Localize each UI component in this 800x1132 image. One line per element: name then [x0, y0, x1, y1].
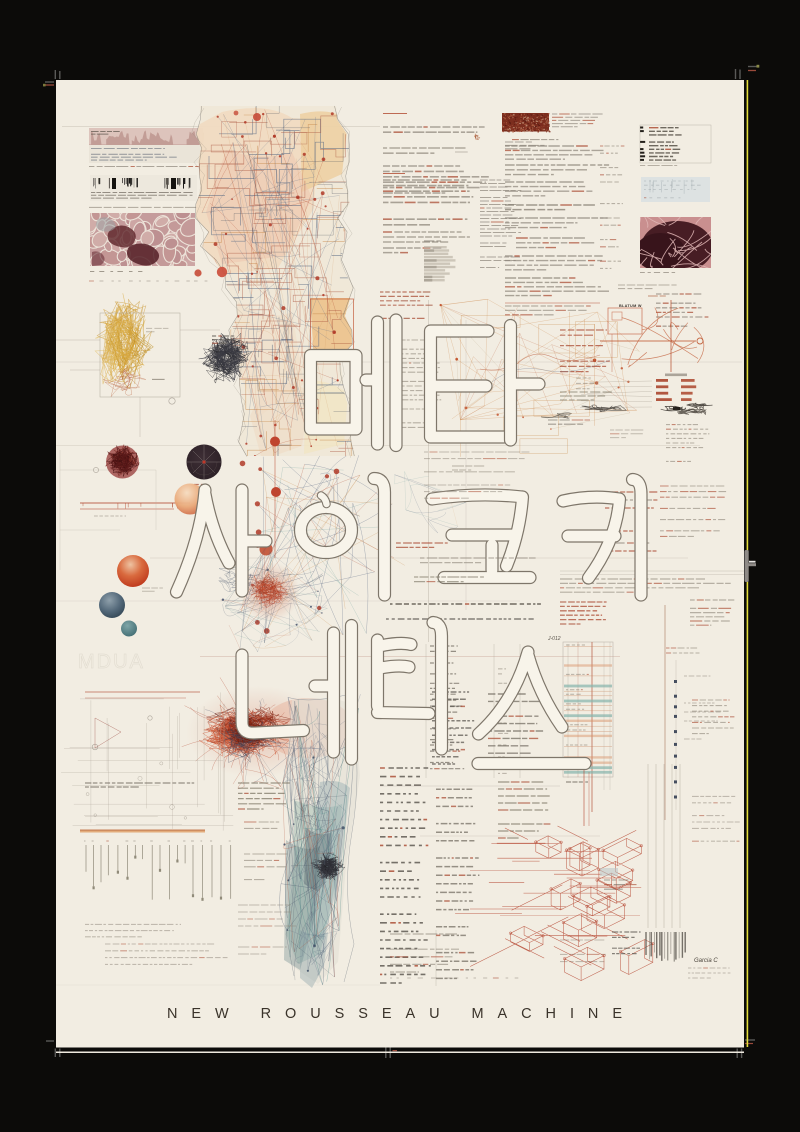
svg-text:MDUA: MDUA	[78, 651, 145, 673]
svg-text:Garcia C: Garcia C	[694, 958, 718, 964]
svg-text:BLATUM W: BLATUM W	[619, 304, 642, 308]
svg-text:J-012: J-012	[547, 636, 561, 642]
svg-text:NEW ROUSSEAU MACHINE: NEW ROUSSEAU MACHINE	[167, 1006, 631, 1022]
